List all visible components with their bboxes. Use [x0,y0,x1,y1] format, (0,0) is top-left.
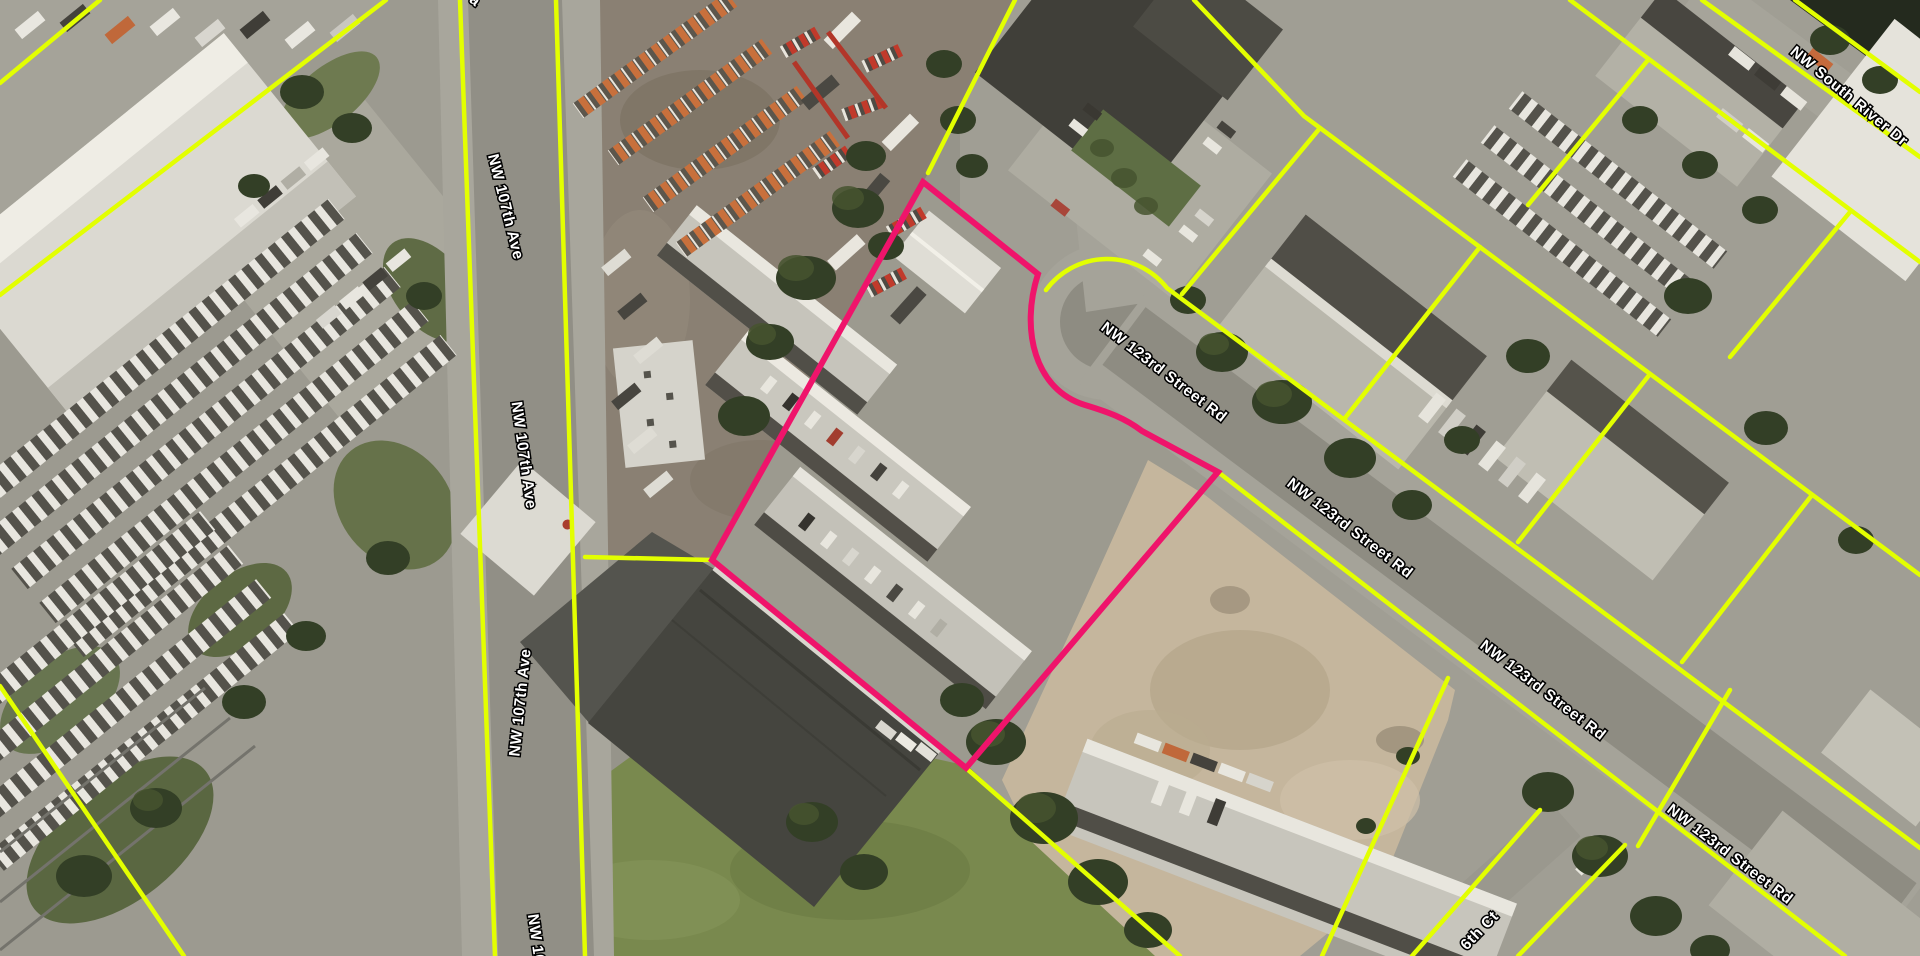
aerial-imagery: NW 107th Ave NW 107th Ave NW 107th Ave N… [0,0,1920,956]
parcel-line [585,557,712,560]
map-canvas[interactable]: NW 107th Ave NW 107th Ave NW 107th Ave N… [0,0,1920,956]
